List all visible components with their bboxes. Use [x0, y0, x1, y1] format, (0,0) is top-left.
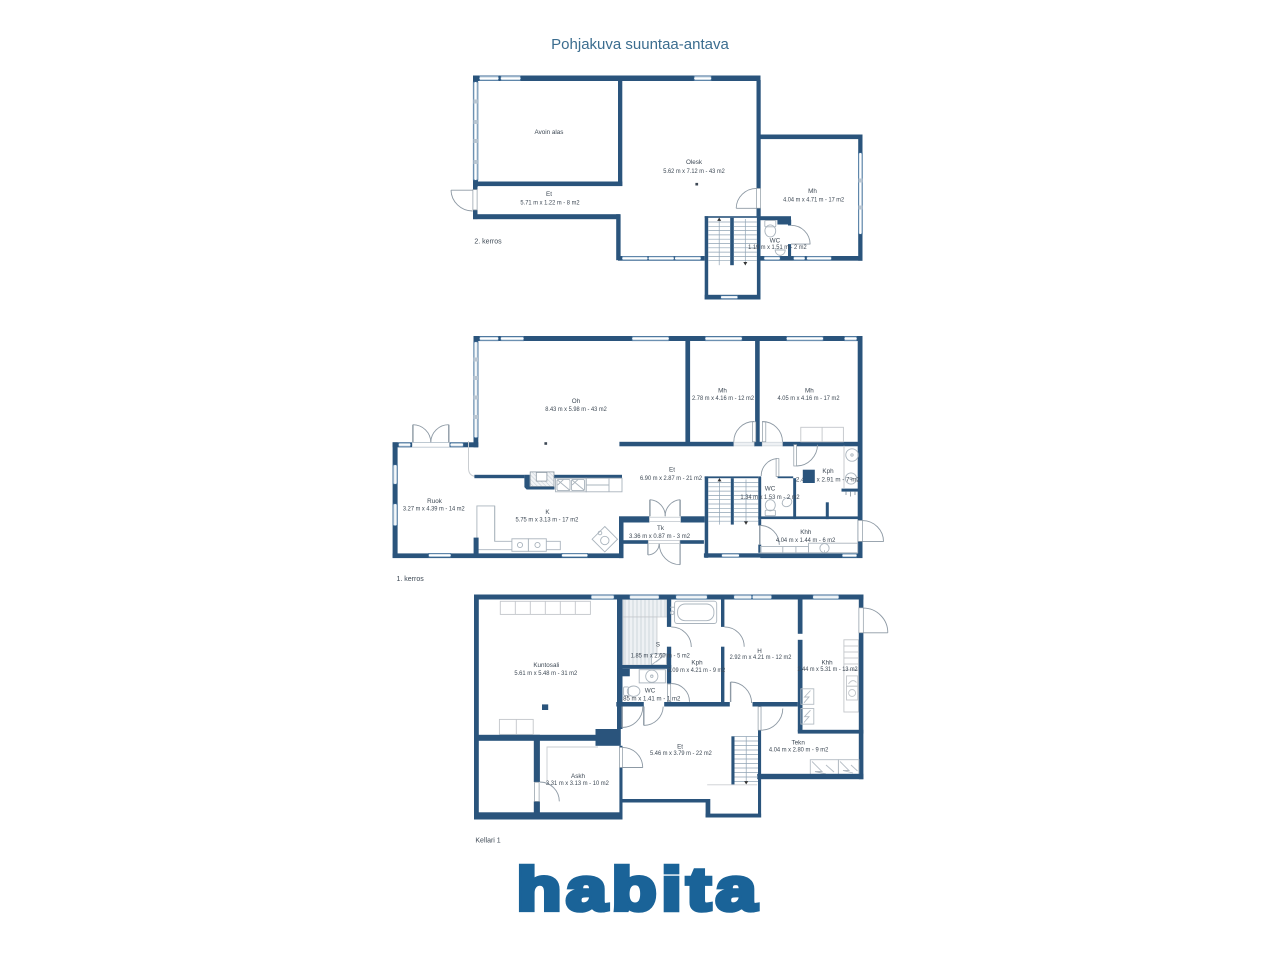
svg-text:2.09 m x 4.21 m - 9 m2: 2.09 m x 4.21 m - 9 m2 — [668, 667, 726, 674]
svg-text:2. kerros: 2. kerros — [474, 239, 502, 246]
svg-text:WC: WC — [765, 486, 776, 493]
svg-text:Tk: Tk — [657, 525, 665, 532]
svg-text:Ruok: Ruok — [427, 498, 443, 505]
svg-text:4.04 m x 4.71 m - 17 m2: 4.04 m x 4.71 m - 17 m2 — [783, 197, 844, 204]
svg-text:2.92 m x 4.21 m - 12 m2: 2.92 m x 4.21 m - 12 m2 — [730, 654, 792, 661]
svg-text:6.90 m x 2.87 m - 21 m2: 6.90 m x 2.87 m - 21 m2 — [640, 475, 702, 482]
svg-text:5.62 m x 7.12 m - 43 m2: 5.62 m x 7.12 m - 43 m2 — [663, 168, 725, 175]
svg-text:Pohjakuva suuntaa-antava: Pohjakuva suuntaa-antava — [551, 36, 729, 53]
svg-text:5.75 m x 3.13 m - 17 m2: 5.75 m x 3.13 m - 17 m2 — [516, 517, 579, 524]
svg-text:5.46 m x 3.79 m - 22 m2: 5.46 m x 3.79 m - 22 m2 — [650, 750, 712, 757]
svg-text:8.43 m x 5.98 m - 43 m2: 8.43 m x 5.98 m - 43 m2 — [545, 406, 607, 413]
svg-text:4.05 m x 4.16 m - 17 m2: 4.05 m x 4.16 m - 17 m2 — [778, 395, 840, 402]
svg-text:1.19 m x 1.51 m - 2 m2: 1.19 m x 1.51 m - 2 m2 — [748, 244, 807, 251]
svg-text:1.85 m x 2.60 m - 5 m2: 1.85 m x 2.60 m - 5 m2 — [631, 652, 691, 659]
svg-text:3.27 m x 4.39 m - 14 m2: 3.27 m x 4.39 m - 14 m2 — [403, 506, 465, 513]
svg-text:Tekn: Tekn — [792, 740, 806, 747]
svg-text:Olesk: Olesk — [686, 159, 703, 166]
svg-text:Mh: Mh — [805, 388, 814, 395]
svg-text:2.78 m x 4.16 m - 12 m2: 2.78 m x 4.16 m - 12 m2 — [692, 395, 754, 402]
svg-text:habita: habita — [517, 856, 762, 923]
svg-text:Kuntosali: Kuntosali — [533, 662, 559, 669]
svg-text:Kph: Kph — [822, 468, 834, 475]
svg-text:Mh: Mh — [718, 388, 727, 395]
svg-text:5.71 m x 1.22 m - 8 m2: 5.71 m x 1.22 m - 8 m2 — [520, 199, 580, 206]
svg-text:Kellari 1: Kellari 1 — [475, 837, 500, 844]
svg-text:5.61 m x 5.48 m - 31 m2: 5.61 m x 5.48 m - 31 m2 — [514, 670, 577, 677]
svg-text:1.34 m x 1.53 m - 2 m2: 1.34 m x 1.53 m - 2 m2 — [740, 494, 800, 501]
svg-text:Mh: Mh — [808, 188, 817, 195]
svg-text:Et: Et — [669, 467, 675, 474]
svg-text:WC: WC — [645, 688, 656, 695]
svg-text:4.04 m x 1.44 m - 6 m2: 4.04 m x 1.44 m - 6 m2 — [776, 537, 836, 544]
svg-text:Kph: Kph — [691, 660, 703, 667]
svg-text:3.36 m x 0.87 m - 3 m2: 3.36 m x 0.87 m - 3 m2 — [629, 533, 690, 540]
svg-text:Khh: Khh — [800, 529, 812, 536]
svg-text:1. kerros: 1. kerros — [397, 576, 425, 583]
svg-text:Avoin alas: Avoin alas — [535, 129, 564, 136]
svg-text:S: S — [656, 641, 660, 648]
svg-text:Et: Et — [546, 191, 552, 198]
svg-text:Askh: Askh — [571, 773, 585, 780]
svg-text:.85 m x 1.41 m - 1 m2: .85 m x 1.41 m - 1 m2 — [621, 695, 680, 702]
svg-text:3.31 m x 3.13 m - 10 m2: 3.31 m x 3.13 m - 10 m2 — [546, 780, 609, 787]
svg-text:4.04 m x 2.80 m - 9 m2: 4.04 m x 2.80 m - 9 m2 — [769, 747, 829, 754]
svg-text:Oh: Oh — [572, 398, 581, 405]
svg-text:2.44 m x 5.31 m - 13 m2: 2.44 m x 5.31 m - 13 m2 — [798, 666, 859, 673]
